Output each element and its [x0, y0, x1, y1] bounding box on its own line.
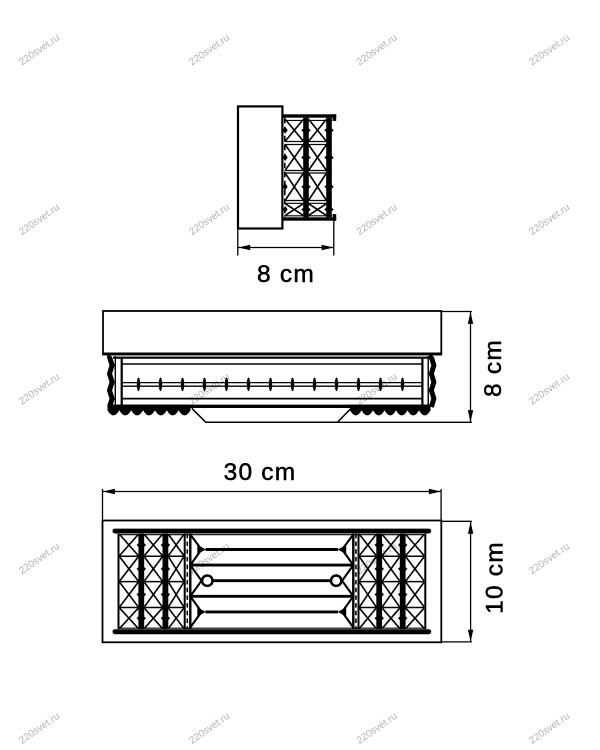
svg-text:30 cm: 30 cm: [224, 459, 297, 486]
svg-text:10 cm: 10 cm: [481, 541, 508, 614]
svg-text:8 cm: 8 cm: [480, 339, 507, 397]
svg-text:8 cm: 8 cm: [257, 261, 315, 288]
